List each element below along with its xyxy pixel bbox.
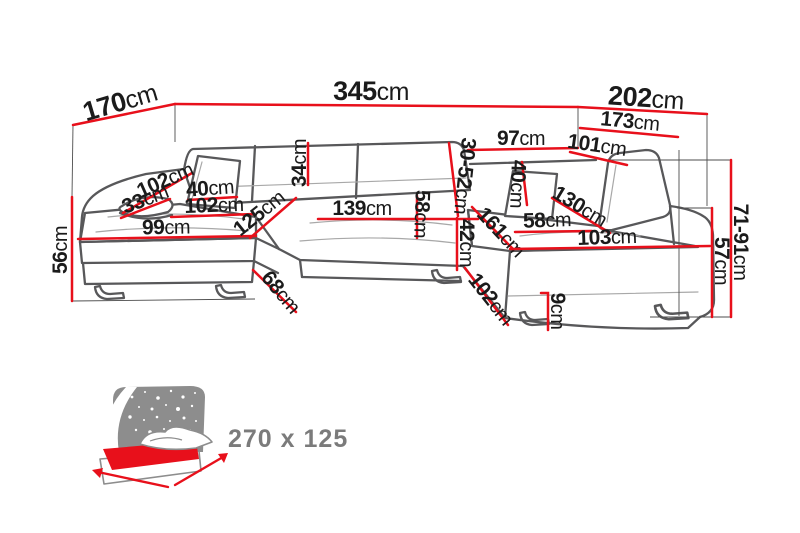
svg-text:40cm: 40cm bbox=[505, 160, 530, 209]
svg-text:170cm: 170cm bbox=[79, 77, 160, 127]
sleeping-size-label: 270 x 125 bbox=[228, 425, 348, 453]
svg-text:71-91cm: 71-91cm bbox=[729, 204, 752, 281]
dimension-back-shelf-width: 97cm bbox=[468, 127, 578, 150]
svg-text:58cm: 58cm bbox=[409, 190, 434, 239]
right-armrest bbox=[670, 206, 714, 317]
svg-text:102cm: 102cm bbox=[184, 193, 244, 218]
svg-text:58cm: 58cm bbox=[523, 208, 572, 233]
sofa-dimension-diagram: 170cm 345cm 202cm 173cm 97cm 101cm 30-52… bbox=[0, 0, 800, 533]
svg-text:345cm: 345cm bbox=[333, 76, 409, 106]
dimension-right-depth: 202cm bbox=[578, 80, 707, 115]
svg-text:102cm: 102cm bbox=[463, 269, 518, 330]
dimension-right-back-height-range: 71-91cm bbox=[729, 160, 752, 317]
center-section bbox=[279, 220, 463, 281]
svg-text:56cm: 56cm bbox=[49, 226, 72, 274]
dimension-front-height: 42cm bbox=[455, 218, 478, 270]
dimension-right-chaise-side-width: 102cm bbox=[463, 268, 518, 330]
dimension-total-width: 345cm bbox=[175, 76, 578, 107]
svg-text:103cm: 103cm bbox=[577, 225, 637, 250]
sleeping-function-icon: 270 x 125 bbox=[92, 386, 348, 487]
dimension-left-seat-height: 56cm bbox=[49, 197, 72, 301]
dimension-backrest-cushion-height: 34cm bbox=[288, 139, 311, 187]
dimension-center-seat-depth: 58cm bbox=[409, 190, 434, 239]
svg-text:9cm: 9cm bbox=[546, 293, 569, 330]
dimension-left-chaise-side-width: 68cm bbox=[253, 266, 305, 318]
svg-text:139cm: 139cm bbox=[332, 197, 391, 220]
dimension-right-pillow-width: 40cm bbox=[505, 160, 530, 209]
svg-text:99cm: 99cm bbox=[142, 216, 190, 240]
dimension-left-depth: 170cm bbox=[73, 77, 175, 127]
svg-text:97cm: 97cm bbox=[497, 127, 545, 150]
svg-text:68cm: 68cm bbox=[256, 266, 304, 318]
svg-text:34cm: 34cm bbox=[288, 139, 311, 187]
back-shelf bbox=[470, 160, 596, 164]
svg-text:42cm: 42cm bbox=[455, 219, 478, 267]
svg-text:101cm: 101cm bbox=[566, 130, 628, 161]
